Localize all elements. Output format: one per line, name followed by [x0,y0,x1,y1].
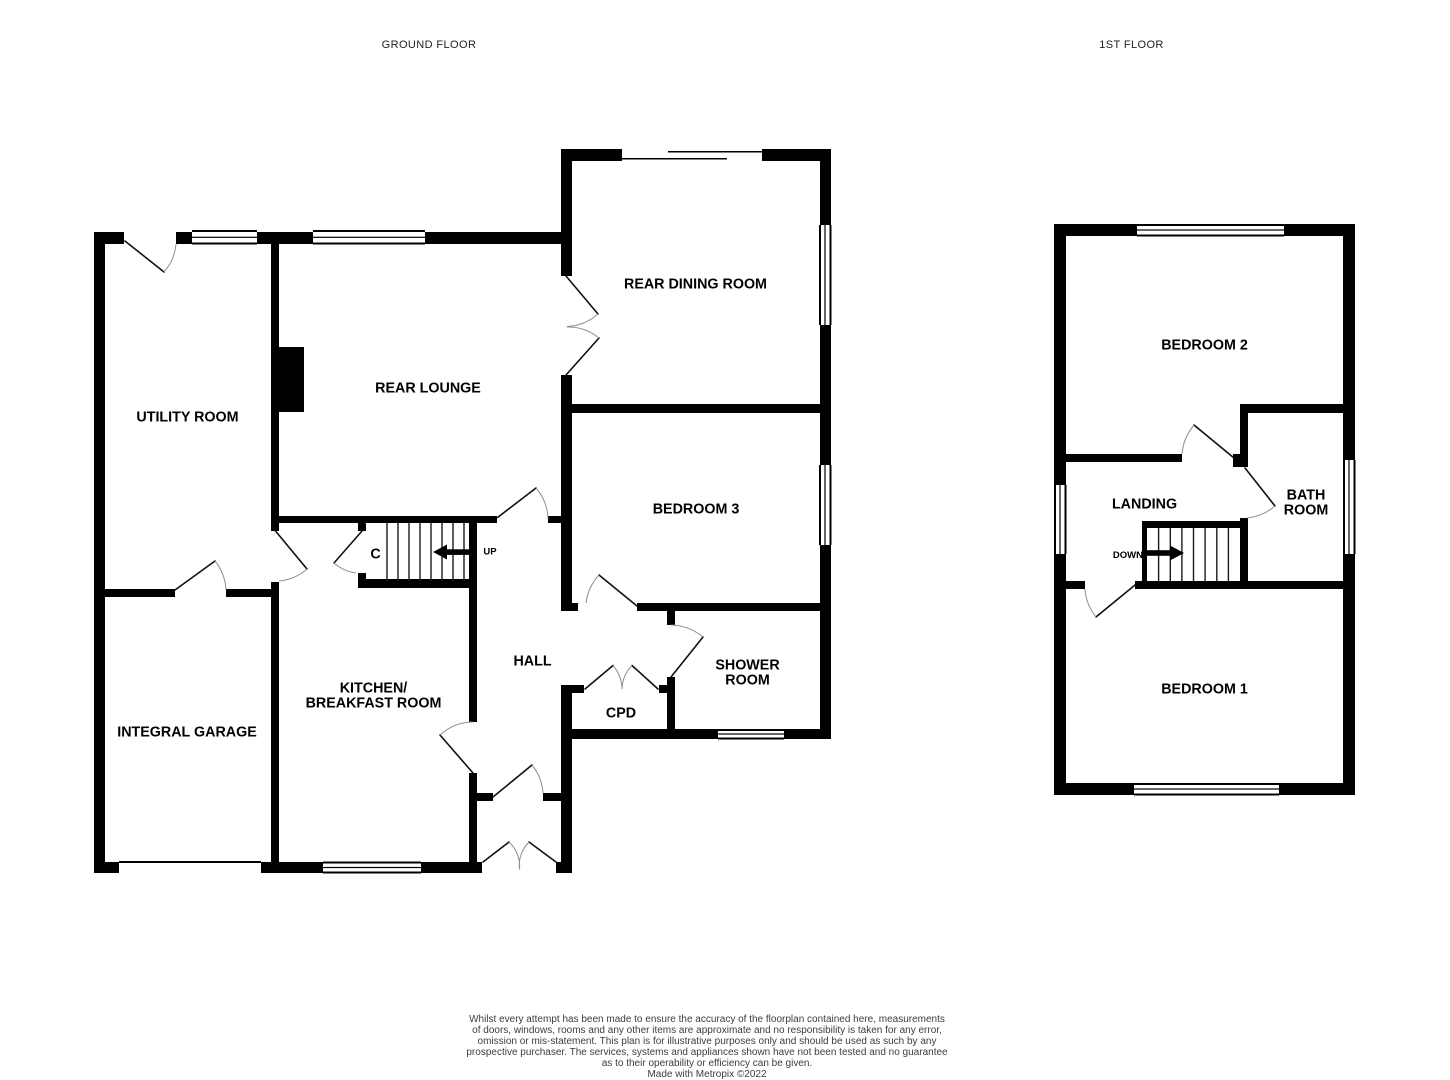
svg-text:Whilst every attempt has been: Whilst every attempt has been made to en… [469,1014,945,1025]
svg-text:BEDROOM 2: BEDROOM 2 [1161,338,1248,354]
svg-text:SHOWER: SHOWER [715,658,780,674]
svg-text:BEDROOM 3: BEDROOM 3 [653,502,740,518]
svg-text:KITCHEN/: KITCHEN/ [340,681,408,697]
svg-text:LANDING: LANDING [1112,497,1177,513]
svg-text:REAR LOUNGE: REAR LOUNGE [375,381,481,397]
svg-text:ROOM: ROOM [1284,503,1328,519]
svg-text:C: C [370,547,380,563]
svg-text:as to their operability or eff: as to their operability or efficiency ca… [602,1058,813,1069]
svg-text:BREAKFAST ROOM: BREAKFAST ROOM [306,696,442,712]
svg-text:BEDROOM 1: BEDROOM 1 [1161,682,1248,698]
svg-text:omission or mis-statement. Thi: omission or mis-statement. This plan is … [478,1036,937,1047]
svg-text:REAR DINING ROOM: REAR DINING ROOM [624,277,767,293]
svg-text:GROUND FLOOR: GROUND FLOOR [382,39,477,51]
svg-text:BATH: BATH [1287,488,1326,504]
svg-text:CPD: CPD [606,706,636,722]
svg-text:of doors, windows, rooms and a: of doors, windows, rooms and any other i… [472,1025,942,1036]
svg-text:Made with Metropix ©2022: Made with Metropix ©2022 [647,1069,767,1080]
svg-text:ROOM: ROOM [725,673,769,689]
svg-text:UTILITY ROOM: UTILITY ROOM [136,410,238,426]
svg-text:HALL: HALL [513,654,551,670]
svg-text:DOWN: DOWN [1113,550,1143,561]
svg-text:1ST FLOOR: 1ST FLOOR [1099,39,1164,51]
svg-text:prospective purchaser. The ser: prospective purchaser. The services, sys… [466,1047,948,1058]
svg-text:UP: UP [483,547,497,558]
svg-text:INTEGRAL GARAGE: INTEGRAL GARAGE [117,725,257,741]
